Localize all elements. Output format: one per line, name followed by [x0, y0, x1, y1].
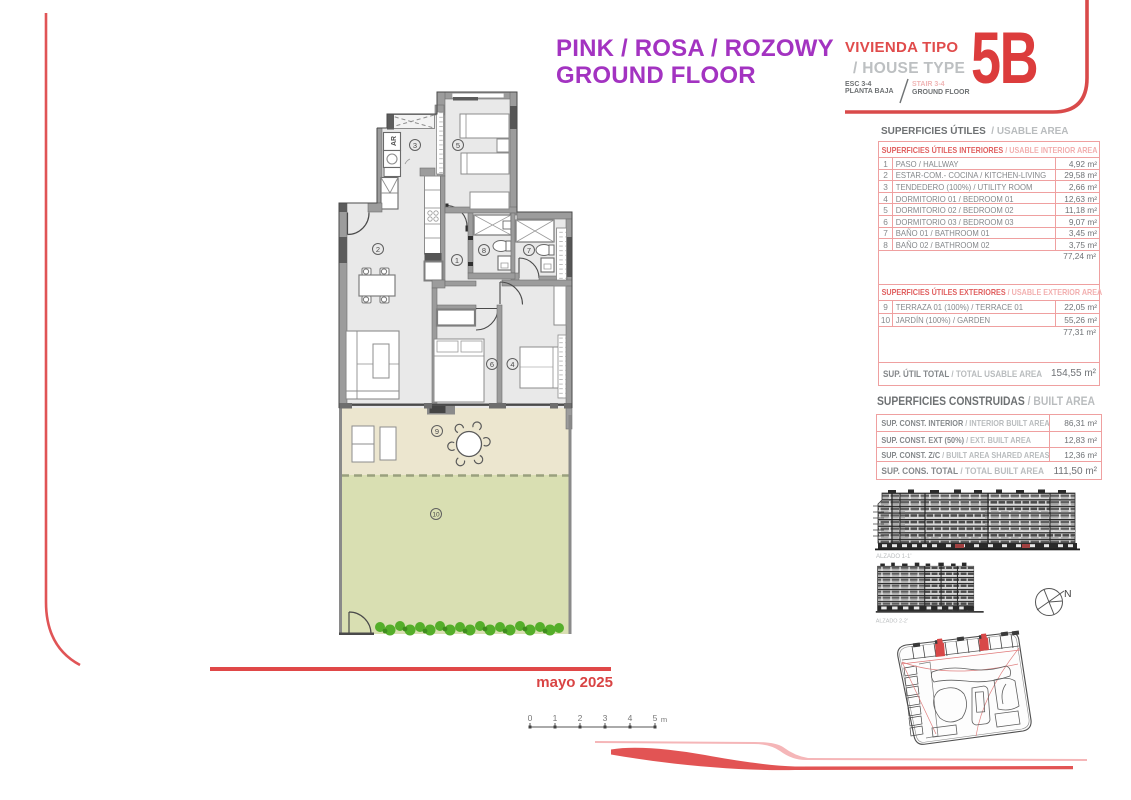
svg-text:10: 10 — [432, 512, 440, 519]
svg-text:5: 5 — [456, 141, 460, 150]
svg-text:2: 2 — [578, 713, 583, 723]
svg-text:6: 6 — [490, 360, 494, 369]
svg-text:0: 0 — [528, 713, 533, 723]
svg-text:m: m — [661, 715, 667, 724]
svg-text:4: 4 — [628, 713, 633, 723]
svg-text:1: 1 — [455, 256, 459, 265]
svg-text:7: 7 — [527, 246, 531, 255]
svg-text:4: 4 — [510, 360, 514, 369]
svg-text:8: 8 — [482, 246, 486, 255]
svg-text:AR: AR — [391, 136, 398, 146]
svg-text:3: 3 — [603, 713, 608, 723]
svg-text:N: N — [1064, 588, 1072, 600]
svg-text:5: 5 — [653, 713, 658, 723]
svg-text:3: 3 — [413, 141, 417, 150]
svg-text:2: 2 — [376, 245, 380, 254]
svg-text:9: 9 — [435, 427, 439, 436]
svg-text:1: 1 — [553, 713, 558, 723]
